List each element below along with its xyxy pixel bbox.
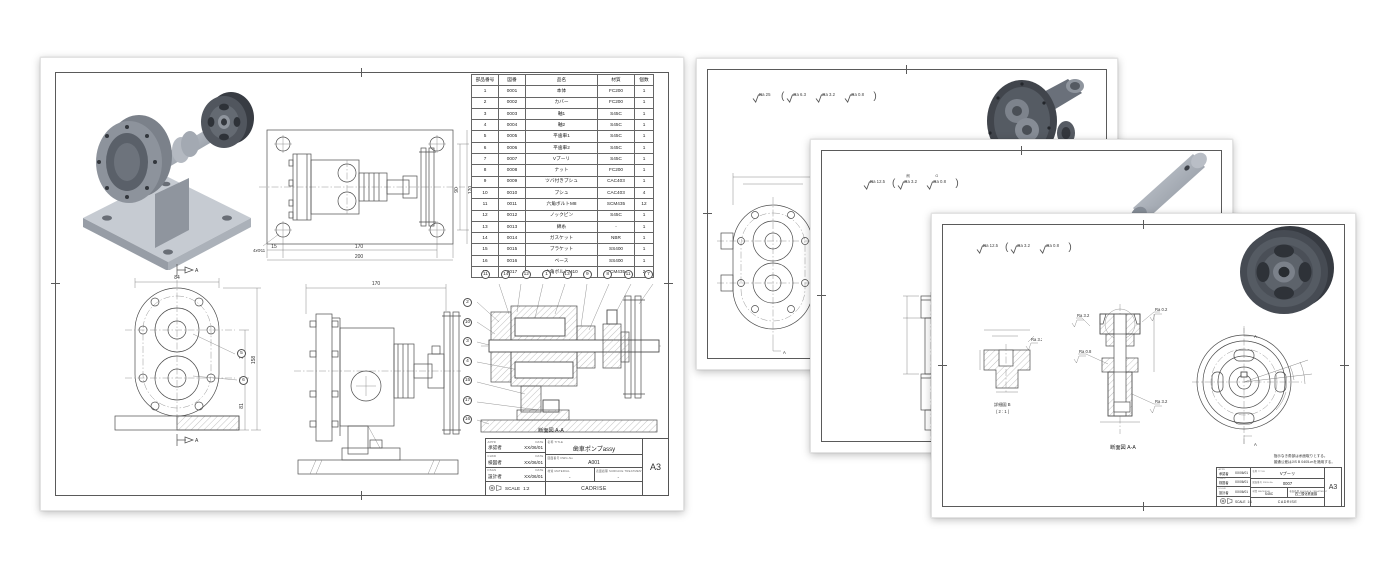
balloon-callout: 11 — [481, 270, 490, 279]
balloon-callout: 12 — [522, 270, 531, 279]
balloon-callout: 6 — [239, 376, 248, 385]
title-block: APPD DATE 承認者XX/06/01 CHKD DATE 検図者XX/06… — [485, 438, 669, 496]
organization-name: CADRISE — [546, 482, 642, 495]
section-balloons-left: 21034151716 — [463, 298, 472, 424]
section-balloons-top: 11141211398117 — [481, 270, 653, 279]
roughness-callout: Ra 0.2 — [1155, 307, 1168, 312]
roughness-value: Ra 0.8 — [933, 179, 946, 184]
third-angle-projection-icon — [488, 484, 502, 493]
approver-name: 承認者 — [488, 445, 502, 451]
checker-name: 検図者 — [488, 460, 502, 466]
designer-name: 設計者 — [488, 474, 502, 480]
assembly-drawing-sheet: 15 170 200 90 120 4xΦ11 部品番号図番品名材質個数 100… — [40, 57, 684, 511]
column-header: 材質 — [598, 75, 635, 86]
roughness-value: Ra 6.3 — [793, 92, 806, 97]
material-value: - — [569, 474, 571, 481]
column-header: 部品番号 — [472, 75, 499, 86]
surface-treatment-cell: 表面処理 SURFACE TREATMENT 四三酸化鉄被膜 — [1287, 488, 1324, 497]
column-header: 個数 — [635, 75, 654, 86]
drawing-number: 0007 — [1283, 480, 1292, 487]
section-caption: 断面図 A-A — [1088, 444, 1158, 451]
designer-name: 設計者 — [1219, 490, 1229, 495]
section-arrow-label: A — [195, 268, 199, 274]
table-row: 50005平歯車1S45C1 — [472, 131, 654, 142]
table-row: 90009ツバ付きブシュCAC4031 — [472, 176, 654, 187]
table-row: 160016ベースSS4001 — [472, 255, 654, 266]
roughness-callout: Ra 3.2 — [1031, 337, 1042, 342]
dimension: 170 — [372, 281, 381, 287]
roughness-callout: Ra 3.2 — [1155, 399, 1168, 404]
assembly-3d-view — [69, 70, 264, 270]
table-row: 40004軸2S45C1 — [472, 120, 654, 131]
table-row: 60006平歯車2S45C1 — [472, 142, 654, 153]
table-row: 20002カバーFC2001 — [472, 97, 654, 108]
general-notes: 指示なき角部は糸面取りとする。 普通公差はJIS B 0405-mを適用する。 — [1274, 454, 1335, 466]
dimension: 158 — [251, 356, 257, 365]
assembly-side-view: 170 — [286, 276, 466, 486]
drawing-number-cell: 図面番号 DWG-No 0007 — [1251, 479, 1324, 488]
balloon-callout: 16 — [463, 415, 472, 424]
roughness-callout: Ra 0.8 — [1079, 349, 1092, 354]
hole-note: 4xΦ11 — [253, 248, 266, 253]
surface-roughness-note: Ra 25 ( Ra 6.3 Ra 3.2 Ra 0.8 ) — [752, 91, 877, 105]
dimension: 200 — [355, 254, 364, 260]
parts-table: 部品番号図番品名材質個数 10001本体FC200120002カバーFC2001… — [471, 74, 654, 278]
pulley-front-view: A A — [1190, 322, 1322, 452]
section-arrow-label: A — [1254, 334, 1257, 339]
pulley-part-drawing-sheet: Ra 12.5 ( Ra 3.2 Ra 0.8 ) Ra 3.2 詳細図 B (… — [931, 213, 1356, 518]
table-row: 100010ブシュCAC4034 — [472, 187, 654, 198]
balloon-callout: 8 — [603, 270, 612, 279]
checker-name: 検図者 — [1219, 480, 1229, 485]
sheet-size-label: A3 — [1325, 468, 1341, 506]
roughness-value: Ra 3.2 — [1017, 243, 1030, 248]
table-row: 120012ノックピンS45C1 — [472, 210, 654, 221]
assembly-top-view: 15 170 200 90 120 4xΦ11 — [253, 118, 473, 268]
roughness-main: Ra 12.5 — [870, 179, 885, 184]
roughness-main: Ra 12.5 — [983, 243, 998, 248]
title-block-row: APPD DATE 承認者XX/06/01 — [486, 439, 545, 453]
scale-cell: SCALE 1:2 — [486, 482, 545, 495]
detail-scale: ( 2 : 1 ) — [996, 409, 1010, 414]
machining-note: G — [935, 174, 938, 178]
detail-caption: 詳細図 B — [994, 401, 1011, 408]
balloon-callout: 3 — [463, 337, 472, 346]
drawing-title: Vプーリ — [1280, 470, 1295, 478]
shaft-3d-view — [1129, 150, 1215, 222]
table-row: 150015ブラケットSS4001 — [472, 244, 654, 255]
dimension: 15 — [271, 244, 277, 250]
table-row: 10001本体FC2001 — [472, 86, 654, 97]
table-row: 130013綿糸-1 — [472, 221, 654, 232]
note-line: 普通公差はJIS B 0405-mを適用する。 — [1274, 460, 1335, 466]
balloon-callout: 17 — [463, 396, 472, 405]
title-block-row: DSGN DATE 設計者XX/06/01 — [486, 468, 545, 482]
check-date: XX/06/01 — [524, 460, 543, 466]
dimension: 170 — [355, 244, 364, 250]
surface-roughness-note: Ra 12.5 ( 削Ra 3.2 GRa 0.8 ) — [863, 178, 959, 192]
pulley-3d-view — [1235, 226, 1337, 318]
title-block-row: CHKD DATE 検図者XX/06/01 — [486, 453, 545, 467]
surface-treatment-value: - — [617, 474, 619, 481]
title-block: APPD 承認者XX/06/01 CHKD 検図者XX/06/01 DSGN 設… — [1216, 467, 1342, 507]
section-arrow-label: A — [1254, 442, 1257, 447]
section-caption: 断面図 A-A — [496, 427, 606, 434]
scale-value: 1:2 — [523, 486, 529, 491]
balloon-callout: 7 — [644, 270, 653, 279]
table-row: 30003軸1S45C1 — [472, 108, 654, 119]
table-row: 140014ガスケットNBR1 — [472, 233, 654, 244]
approval-date: XX/06/01 — [1235, 471, 1248, 476]
balloon-callout: 13 — [563, 270, 572, 279]
table-row: 110011六角ボルトM8SCM43512 — [472, 199, 654, 210]
column-header: 図番 — [499, 75, 526, 86]
column-header: 品名 — [526, 75, 598, 86]
dimension: 84 — [174, 275, 180, 281]
roughness-value: Ra 3.2 — [822, 92, 835, 97]
dimension: 90 — [454, 187, 460, 193]
sheet-size-label: A3 — [643, 439, 668, 495]
check-date: XX/06/01 — [1235, 480, 1248, 485]
balloon-callout: 4 — [463, 357, 472, 366]
drawing-number-cell: 図面番号 DWG-No A001 — [546, 455, 642, 468]
design-date: XX/06/01 — [1235, 490, 1248, 495]
title-block-row: APPD 承認者XX/06/01 — [1217, 468, 1250, 478]
balloon-callout: 9 — [583, 270, 592, 279]
drawing-title-cell: 名称 TITLE Vプーリ — [1251, 468, 1324, 479]
table-row: 80008ナットFC2001 — [472, 165, 654, 176]
material-cell: 材質 MATERIAL S45C — [1251, 488, 1287, 497]
pulley-section-view: Ra 3.2 Ra 0.2 Ra 0.8 Ra 3.2 — [1070, 302, 1174, 442]
balloon-callout: 2 — [463, 298, 472, 307]
drawing-number: A001 — [588, 459, 600, 467]
balloon-callout: 14 — [501, 270, 510, 279]
approval-date: XX/06/01 — [524, 445, 543, 451]
pulley-detail-view: Ra 3.2 詳細図 B ( 2 : 1 ) — [972, 322, 1042, 426]
drawing-title-cell: 名称 TITLE 歯車ポンプassy — [546, 439, 642, 455]
approver-name: 承認者 — [1219, 471, 1229, 476]
roughness-callout: Ra 3.2 — [1077, 313, 1090, 318]
surface-treatment-cell: 表面処理 SURFACE TREATMENT - — [594, 468, 643, 481]
note-line: 指示なき角部は糸面取りとする。 — [1274, 454, 1335, 460]
title-block-row: CHKD 検図者XX/06/01 — [1217, 478, 1250, 488]
roughness-main: Ra 25 — [759, 92, 770, 97]
roughness-value: Ra 3.2 — [904, 179, 917, 184]
table-row: 70007VプーリS45C1 — [472, 154, 654, 165]
balloon-callout: 11 — [624, 270, 633, 279]
balloon-callout: 1 — [542, 270, 551, 279]
assembly-section-view — [469, 274, 665, 434]
section-arrow-label: A — [783, 350, 786, 355]
parts-table-header-row: 部品番号図番品名材質個数 — [472, 75, 654, 86]
roughness-value: Ra 0.8 — [851, 92, 864, 97]
organization-name: CADRISE — [1251, 498, 1324, 506]
third-angle-projection-icon — [1219, 497, 1233, 506]
surface-roughness-note: Ra 12.5 ( Ra 3.2 Ra 0.8 ) — [976, 242, 1072, 256]
cad-drawings-collage: Ra 25 ( Ra 6.3 Ra 3.2 Ra 0.8 ) Ra 6.3 — [0, 0, 1380, 565]
balloon-callout: 5 — [237, 349, 246, 358]
balloon-callout: 10 — [463, 318, 472, 327]
section-arrow-label: A — [195, 438, 199, 444]
material-cell: 材質 MATERIAL - — [546, 468, 594, 481]
title-block-row: DSGN 設計者XX/06/01 — [1217, 487, 1250, 497]
balloon-callout: 15 — [463, 376, 472, 385]
scale-cell: SCALE 1:1 — [1217, 497, 1250, 506]
design-date: XX/06/01 — [524, 474, 543, 480]
dimension: 81 — [239, 403, 245, 409]
roughness-value: Ra 0.8 — [1046, 243, 1059, 248]
drawing-title: 歯車ポンプassy — [573, 443, 615, 454]
